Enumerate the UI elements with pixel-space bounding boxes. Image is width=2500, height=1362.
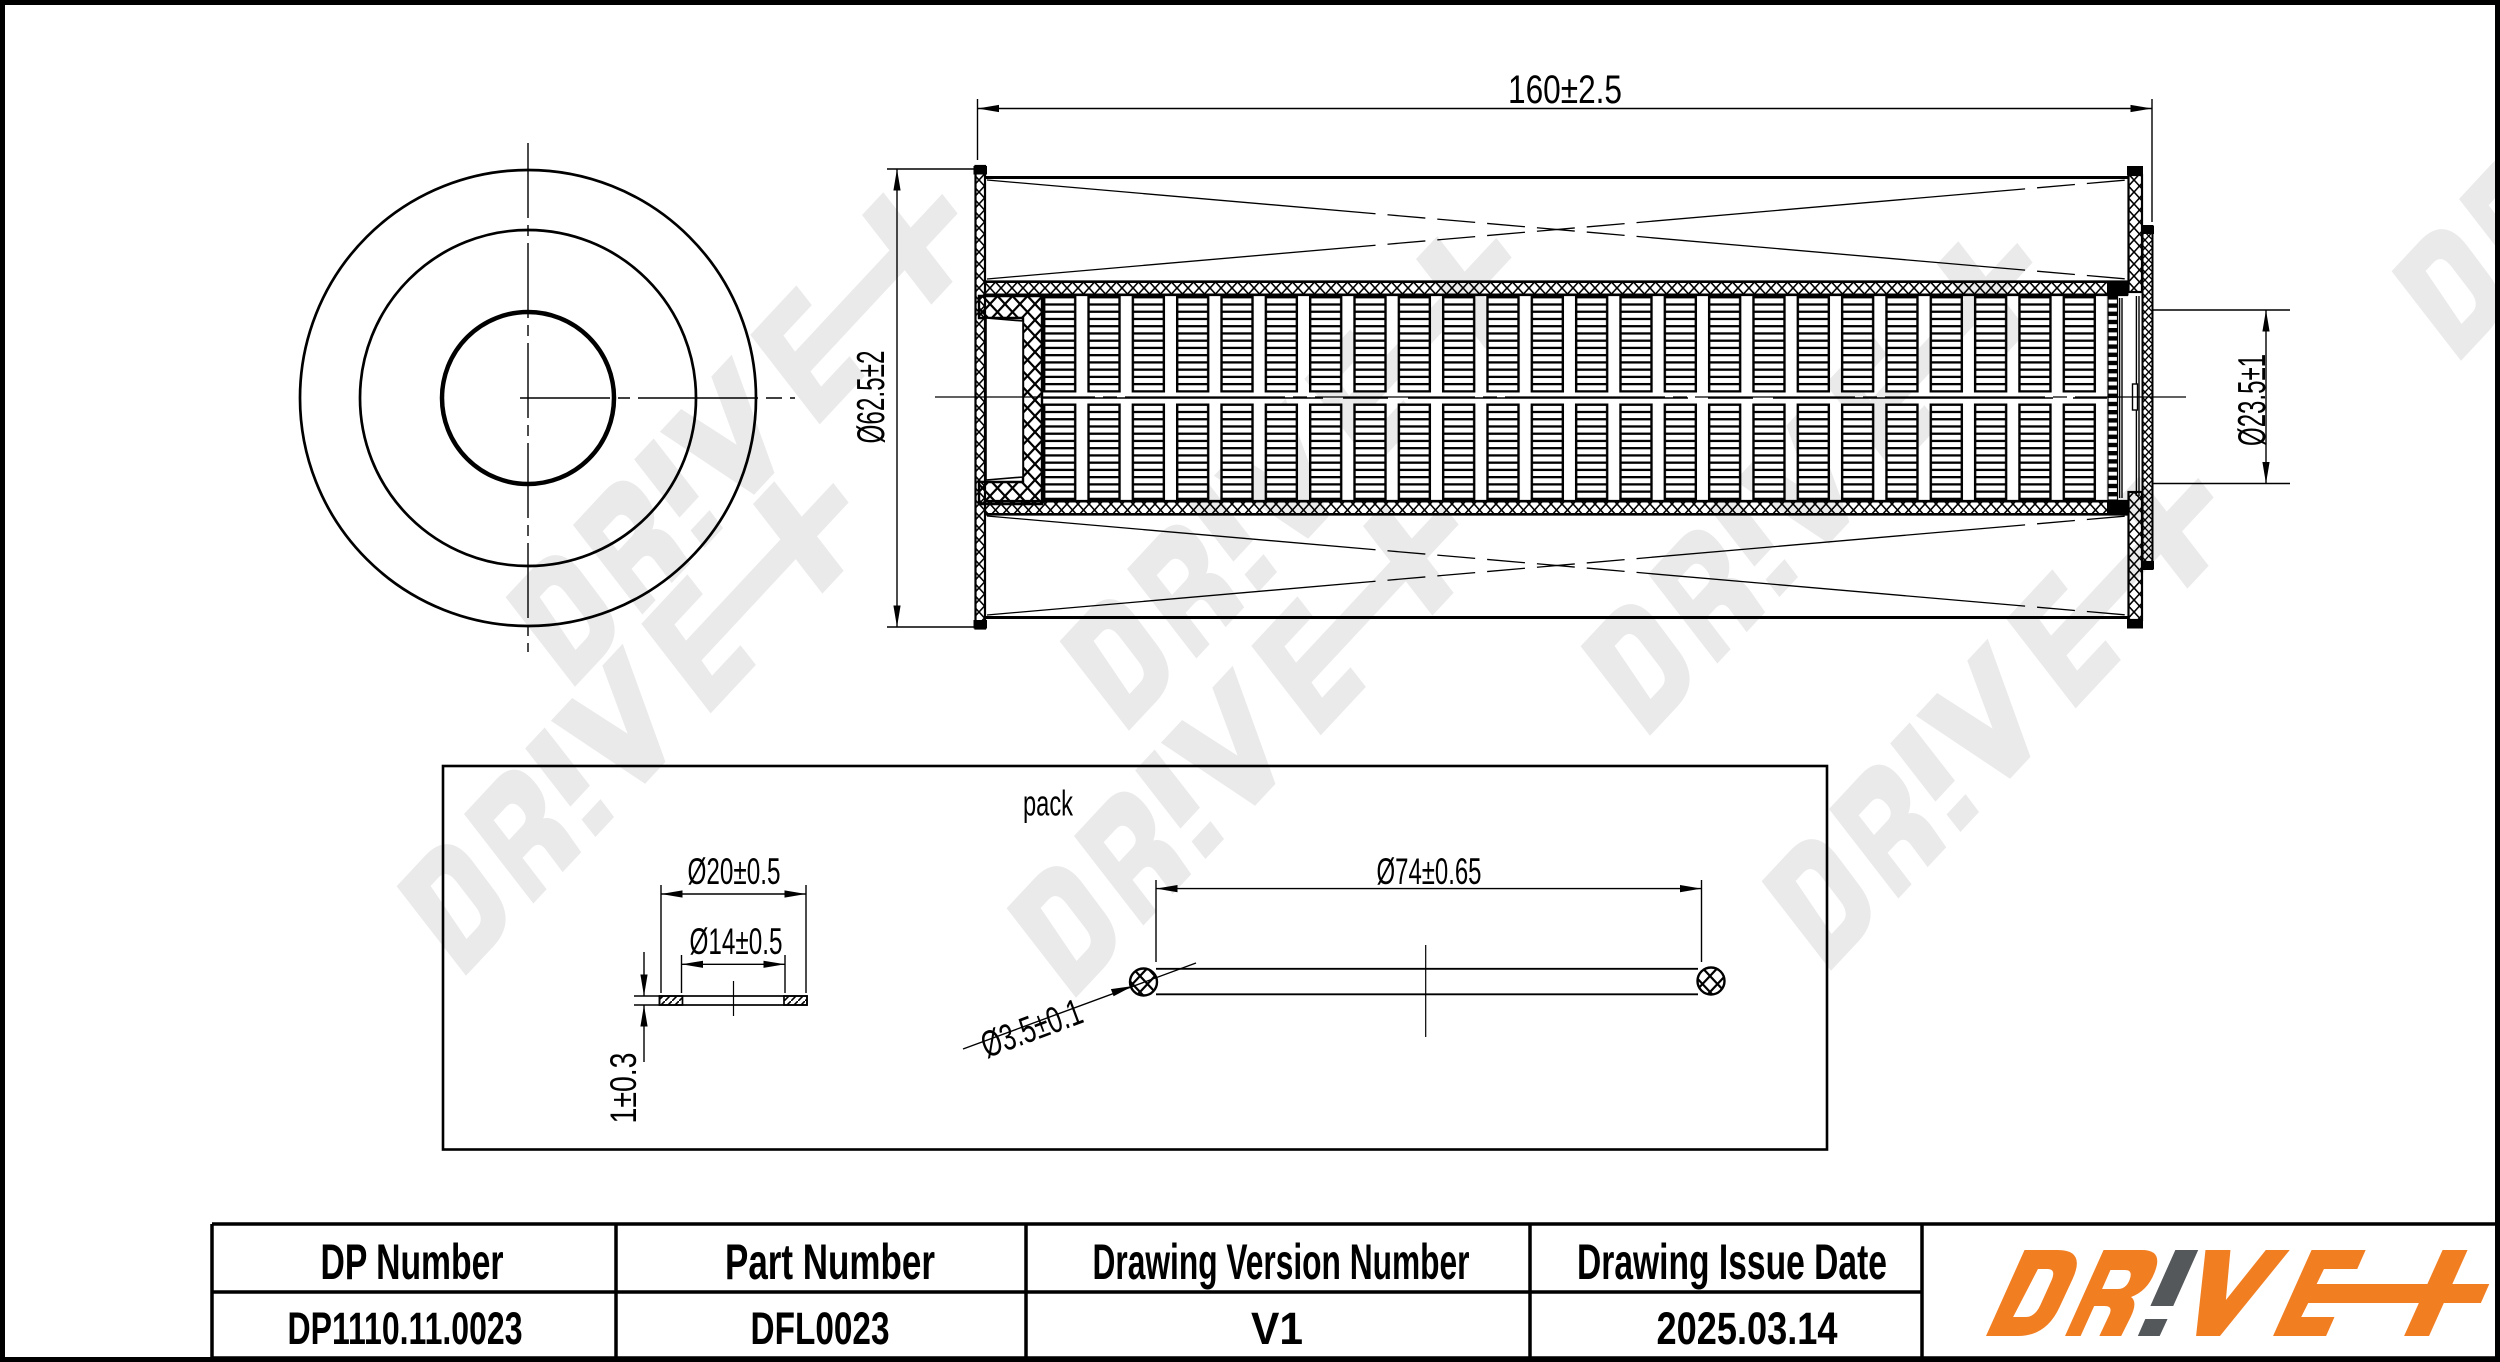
svg-text:1±0.3: 1±0.3: [603, 1053, 644, 1124]
svg-text:V1: V1: [1251, 1303, 1303, 1354]
svg-text:Ø23.5±1: Ø23.5±1: [2231, 354, 2274, 446]
svg-text:DP1110.11.0023: DP1110.11.0023: [288, 1303, 523, 1354]
svg-text:Part Number: Part Number: [725, 1234, 935, 1290]
svg-text:Ø14±0.5: Ø14±0.5: [690, 921, 783, 962]
svg-text:DP Number: DP Number: [321, 1234, 504, 1290]
svg-text:160±2.5: 160±2.5: [1508, 68, 1622, 112]
svg-text:Drawing Issue Date: Drawing Issue Date: [1577, 1234, 1887, 1290]
svg-text:Ø20±0.5: Ø20±0.5: [688, 851, 781, 892]
svg-text:2025.03.14: 2025.03.14: [1657, 1303, 1838, 1354]
svg-text:Ø74±0.65: Ø74±0.65: [1377, 851, 1482, 892]
svg-text:Ø62.5±2: Ø62.5±2: [850, 351, 893, 444]
svg-text:pack: pack: [1023, 783, 1074, 824]
svg-text:Drawing Version Number: Drawing Version Number: [1093, 1234, 1470, 1290]
svg-text:DFL0023: DFL0023: [751, 1303, 890, 1354]
